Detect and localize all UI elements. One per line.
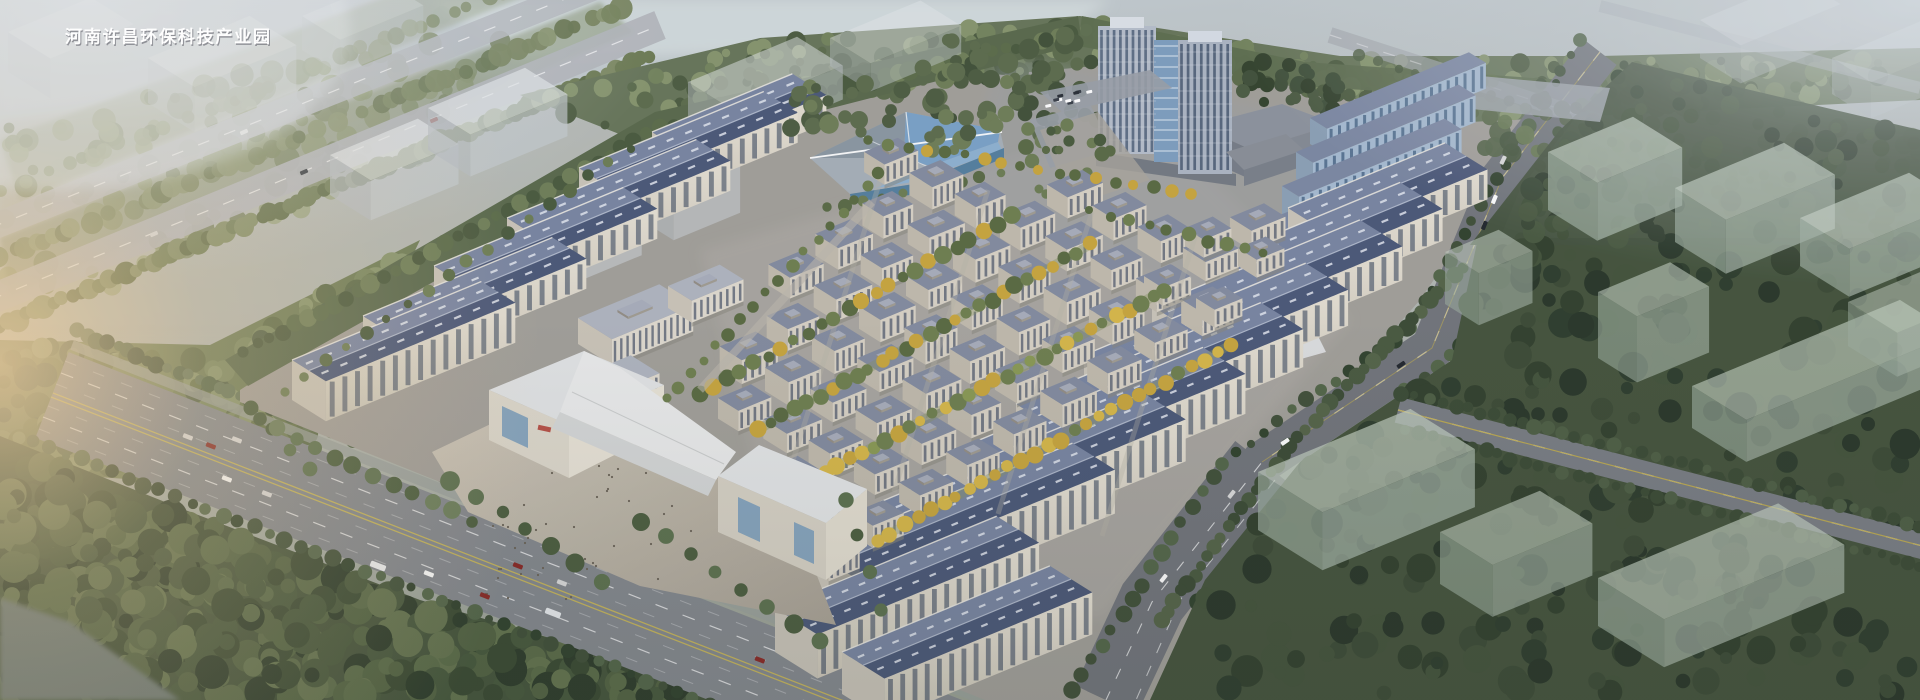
svg-text:河南许昌环保科技产业园: 河南许昌环保科技产业园 bbox=[65, 27, 272, 47]
